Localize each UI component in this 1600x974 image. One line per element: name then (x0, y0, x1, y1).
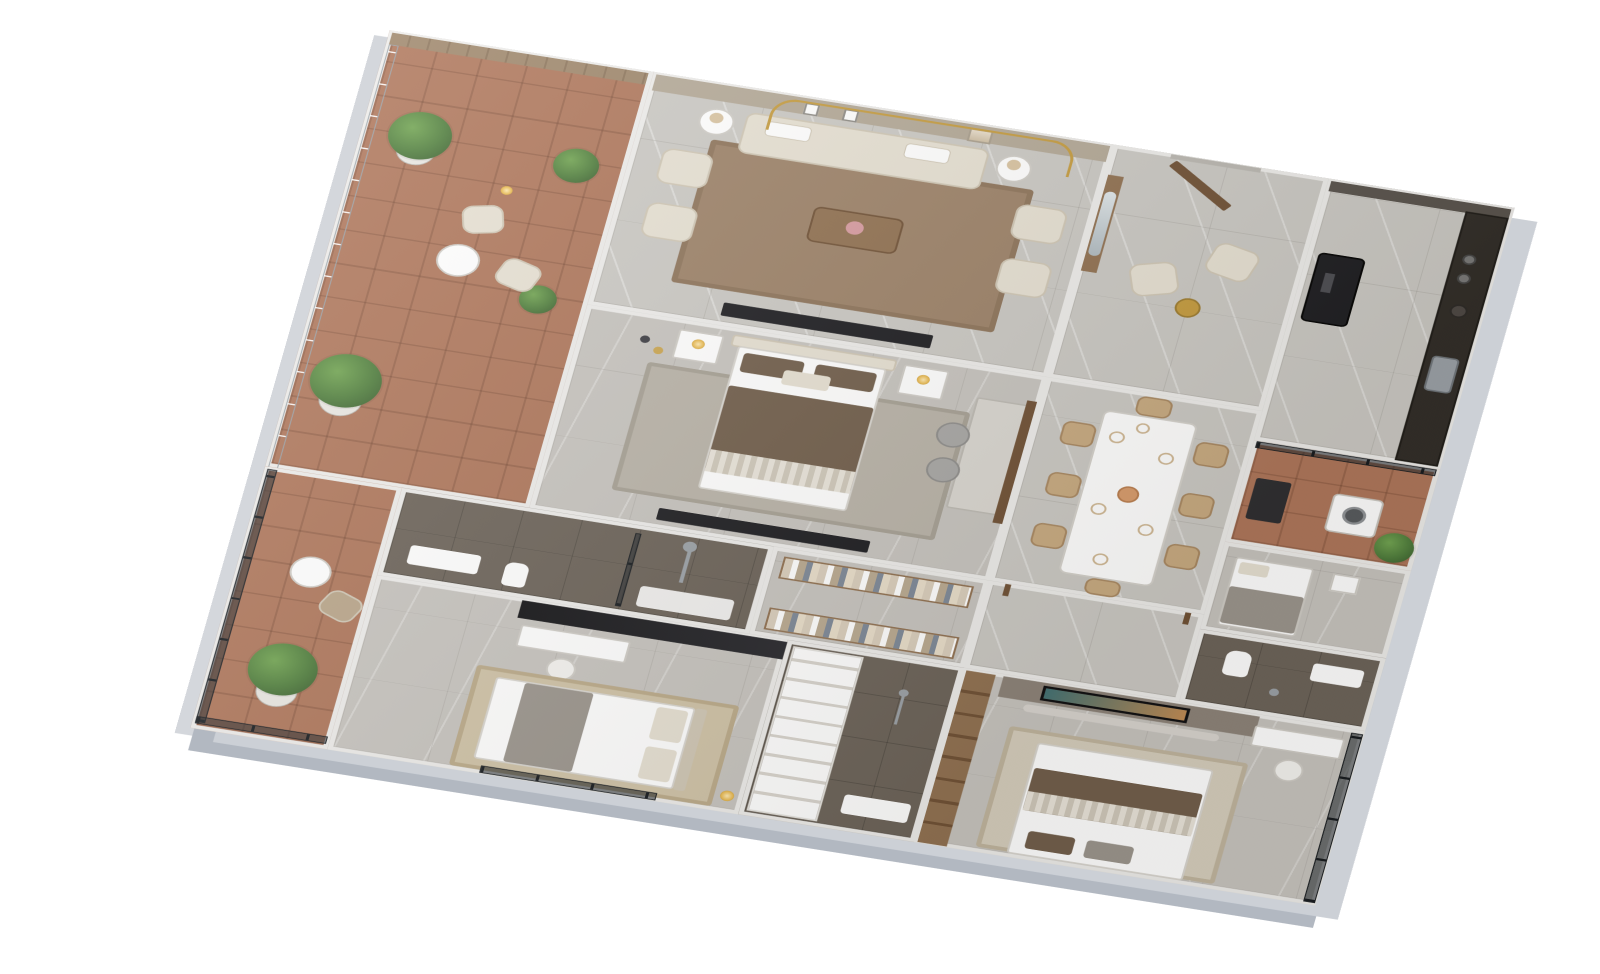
dining-chair (1176, 492, 1216, 521)
dark-marble-counter (1395, 211, 1509, 466)
desk-chair (1271, 757, 1307, 783)
potted-plant-large (382, 108, 458, 164)
toilet (1221, 649, 1254, 678)
vanity-sink (1309, 663, 1365, 688)
round-accent-table (1172, 296, 1203, 319)
potted-plant (549, 145, 604, 186)
potted-plant (1370, 530, 1417, 565)
round-side-table (432, 241, 484, 280)
floor-lamp (500, 185, 514, 196)
black-refrigerator (1300, 252, 1366, 328)
potted-palm (303, 349, 388, 412)
toilet (500, 561, 530, 588)
shower-head (682, 541, 699, 553)
armchair (1128, 261, 1180, 297)
dining-chair (1029, 522, 1069, 551)
door-jamb (1002, 584, 1011, 597)
dining-chair (1191, 441, 1231, 470)
base-cabinet (1245, 478, 1292, 524)
vanity-sink (840, 794, 912, 823)
study-desk (1250, 725, 1346, 760)
armchair (639, 201, 700, 244)
armchair (654, 147, 715, 190)
dining-chair (1058, 420, 1098, 449)
nightstand (1329, 573, 1361, 595)
pendant-light (639, 335, 651, 344)
pendant-light (652, 346, 664, 355)
shower-tray (635, 586, 735, 621)
armchair (1201, 240, 1263, 285)
shower-pole (894, 695, 905, 725)
apartment-plan (190, 30, 1514, 906)
glass-railing (195, 716, 328, 744)
entry-door-open (1169, 160, 1232, 211)
shower-head (1268, 688, 1280, 697)
lounge-chair (314, 587, 368, 626)
floor-lamp (719, 790, 736, 802)
floorplan-scene (0, 0, 1600, 974)
door-jamb (1182, 612, 1191, 625)
dining-chair (1043, 471, 1083, 500)
potted-palm (241, 639, 324, 701)
dining-chair (1162, 543, 1202, 572)
vanity-sink (406, 545, 482, 575)
lounge-chair (461, 205, 504, 234)
round-side-table (286, 554, 336, 591)
wood-slat-wall (389, 33, 649, 85)
